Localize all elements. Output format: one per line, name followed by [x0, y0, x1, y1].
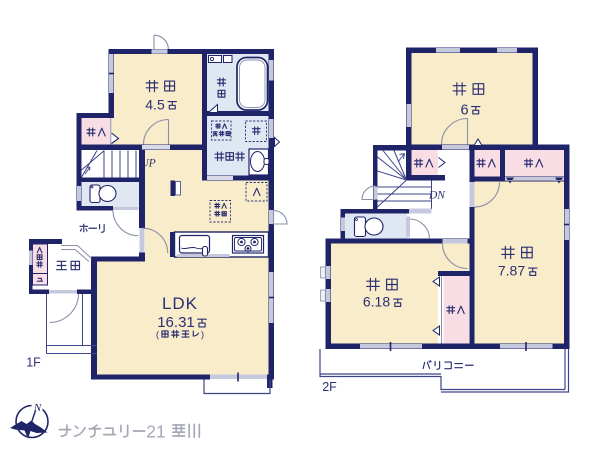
svg-text:6: 6	[460, 103, 468, 119]
svg-text:7.87: 7.87	[498, 263, 525, 279]
svg-text:(: (	[156, 330, 159, 340]
svg-text:LDK: LDK	[162, 294, 198, 313]
svg-text:6.18: 6.18	[363, 294, 390, 310]
svg-text:2F: 2F	[322, 380, 337, 394]
svg-text:21: 21	[146, 422, 165, 442]
svg-text:16.31: 16.31	[157, 314, 195, 331]
svg-text:DN: DN	[428, 190, 446, 202]
svg-text:1F: 1F	[26, 356, 41, 370]
svg-text:UP: UP	[140, 158, 155, 170]
svg-text:N: N	[33, 402, 42, 414]
svg-text:): )	[201, 330, 204, 340]
svg-text:4.5: 4.5	[145, 97, 165, 113]
